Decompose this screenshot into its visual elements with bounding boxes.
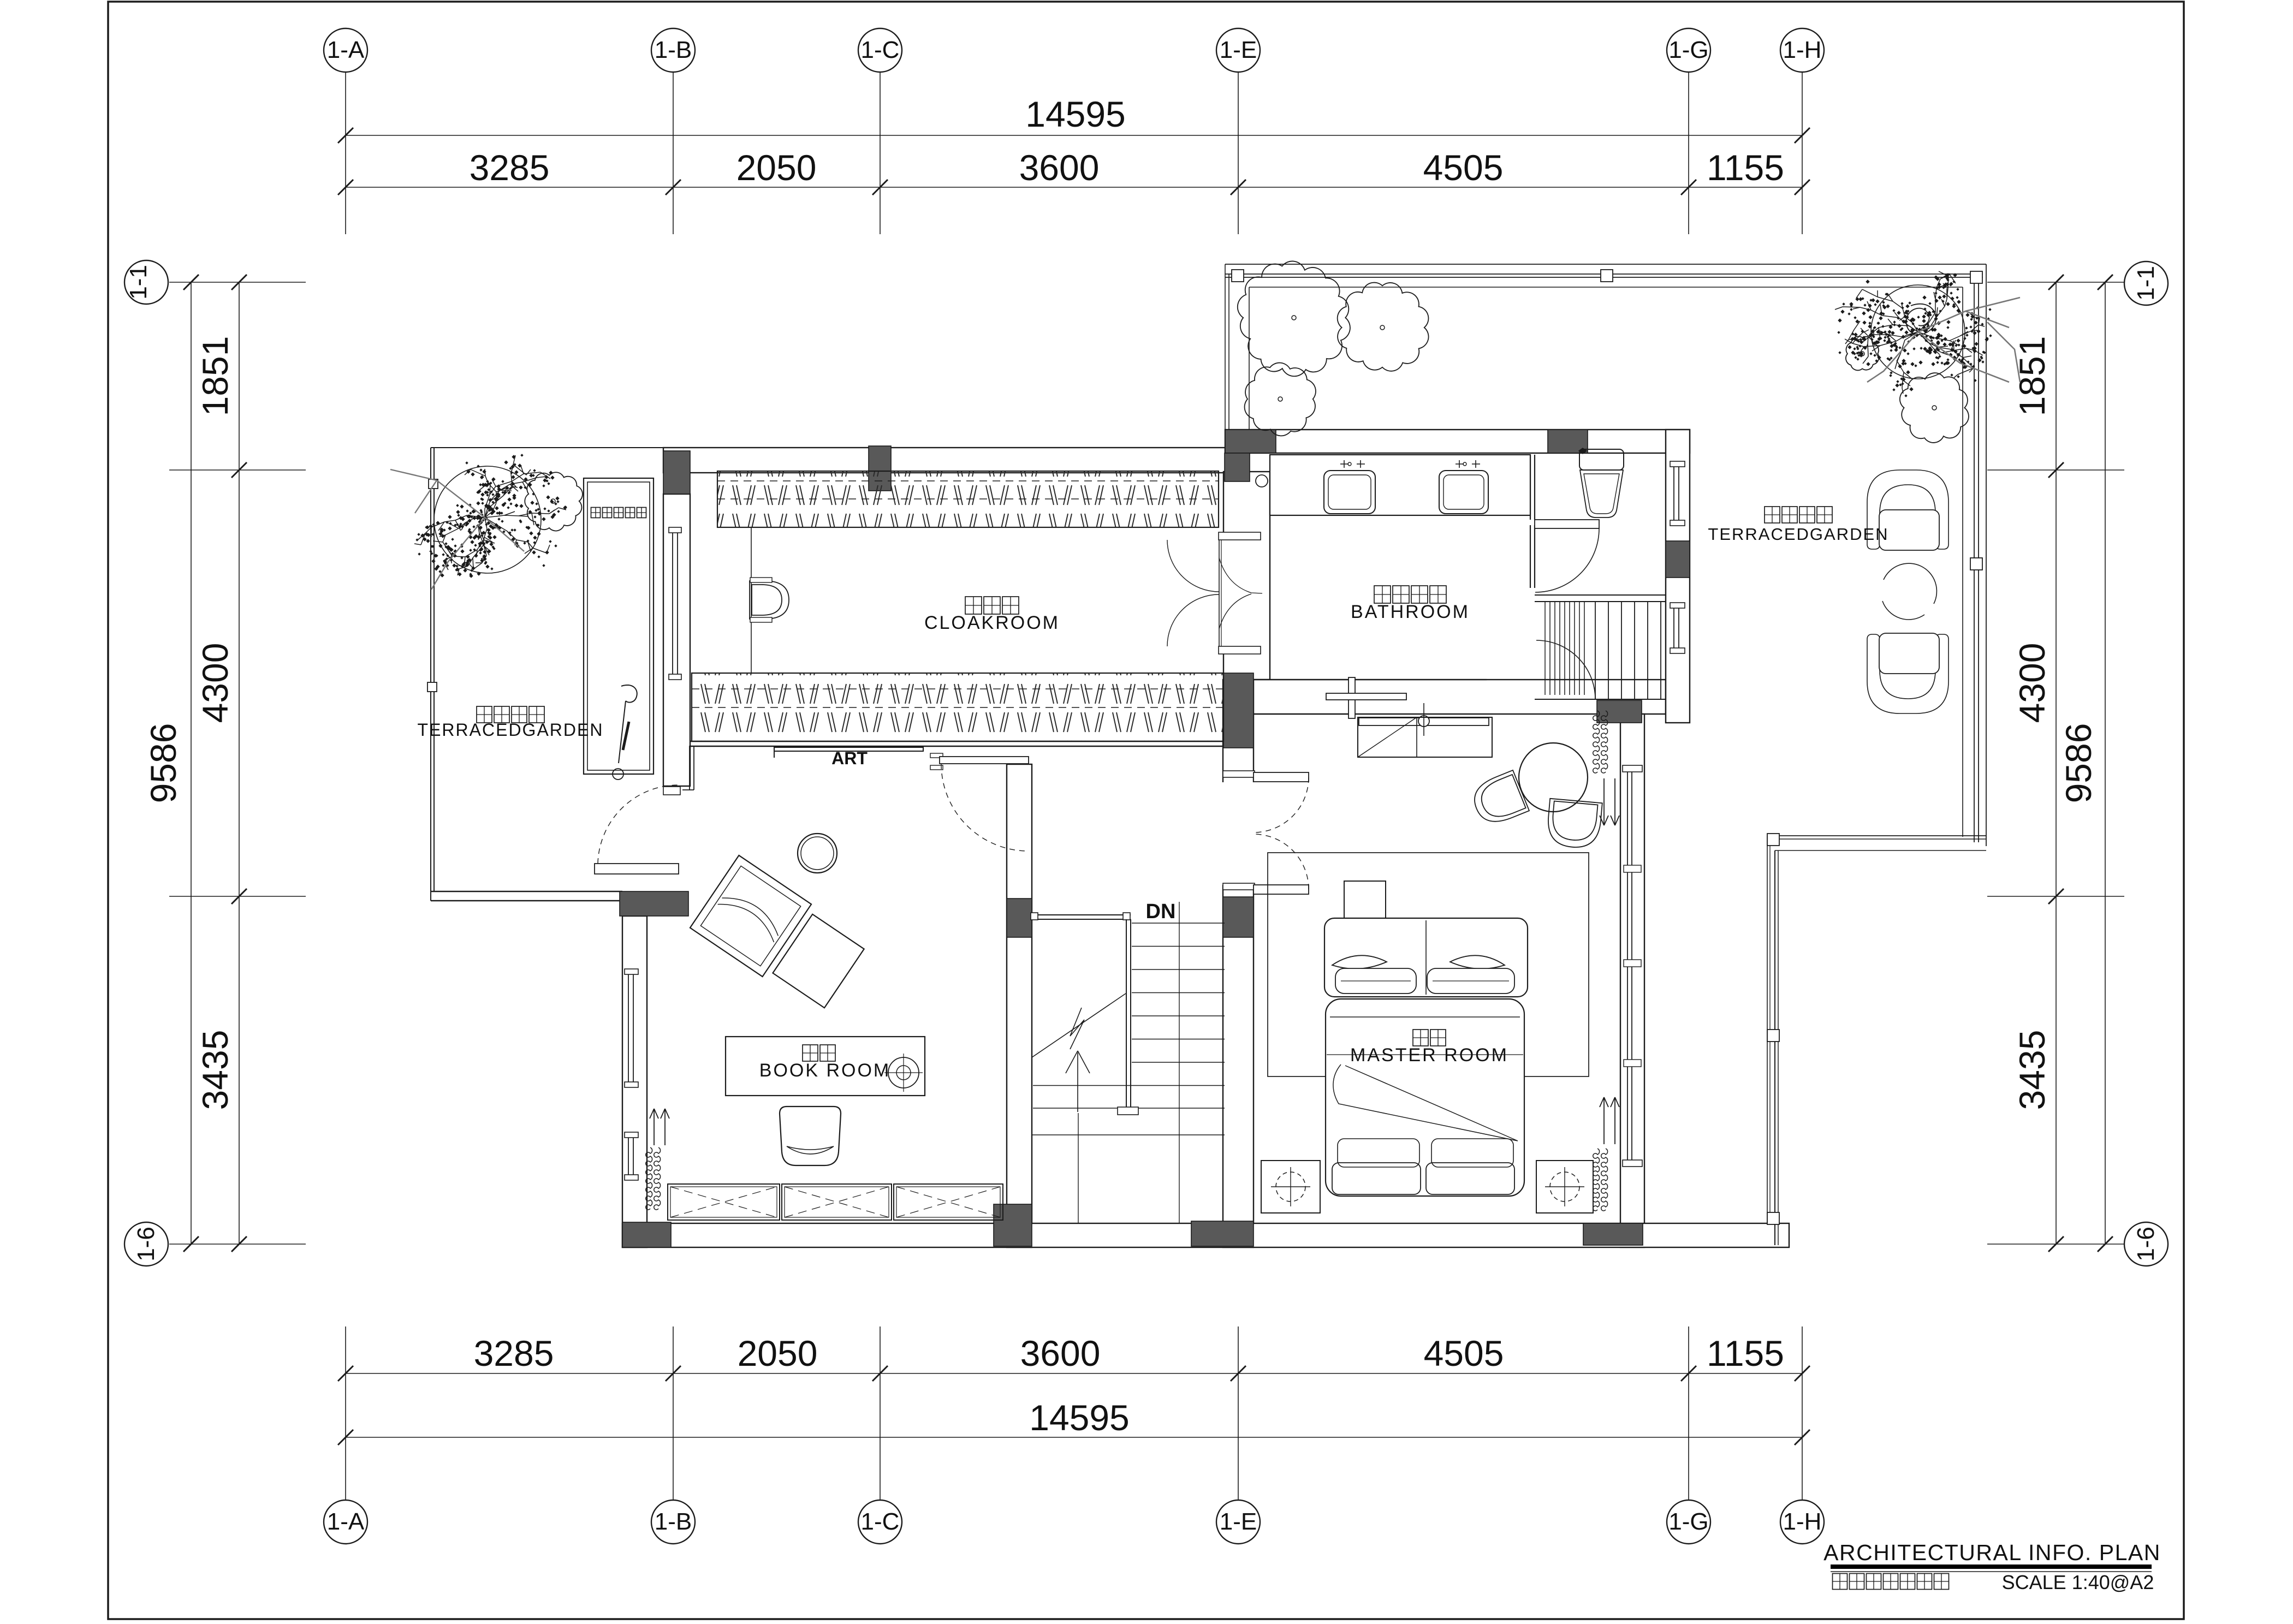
svg-text:TERRACEDGARDEN: TERRACEDGARDEN bbox=[418, 720, 604, 740]
svg-text:1851: 1851 bbox=[195, 336, 235, 417]
svg-text:1-A: 1-A bbox=[327, 1508, 365, 1535]
svg-text:1-C: 1-C bbox=[861, 1508, 900, 1535]
svg-text:1-G: 1-G bbox=[1668, 37, 1708, 63]
svg-text:4300: 4300 bbox=[195, 643, 235, 723]
svg-text:1-E: 1-E bbox=[1220, 1508, 1257, 1535]
svg-text:ARCHITECTURAL INFO. PLAN: ARCHITECTURAL INFO. PLAN bbox=[1823, 1540, 2161, 1565]
svg-text:SCALE 1:40@A2: SCALE 1:40@A2 bbox=[2002, 1571, 2154, 1593]
svg-text:CLOAKROOM: CLOAKROOM bbox=[924, 612, 1060, 633]
svg-text:1-6: 1-6 bbox=[133, 1227, 159, 1262]
svg-text:1-G: 1-G bbox=[1668, 1508, 1708, 1535]
svg-text:4505: 4505 bbox=[1423, 147, 1504, 188]
svg-text:3285: 3285 bbox=[470, 147, 550, 188]
svg-text:1-H: 1-H bbox=[1783, 37, 1822, 63]
svg-text:3435: 3435 bbox=[2012, 1030, 2052, 1110]
svg-text:1-E: 1-E bbox=[1220, 37, 1257, 63]
svg-text:1-A: 1-A bbox=[327, 37, 365, 63]
svg-text:1-H: 1-H bbox=[1783, 1508, 1822, 1535]
svg-text:1-1: 1-1 bbox=[2132, 266, 2159, 301]
svg-text:1-B: 1-B bbox=[655, 37, 692, 63]
svg-text:3285: 3285 bbox=[474, 1333, 554, 1373]
svg-text:1155: 1155 bbox=[1707, 1333, 1784, 1373]
svg-text:9586: 9586 bbox=[2058, 723, 2099, 804]
svg-text:1-6: 1-6 bbox=[2132, 1227, 2159, 1262]
svg-text:4505: 4505 bbox=[1424, 1333, 1504, 1373]
svg-text:ART: ART bbox=[831, 748, 868, 768]
svg-text:1-C: 1-C bbox=[861, 37, 900, 63]
svg-text:2050: 2050 bbox=[736, 147, 817, 188]
svg-text:2050: 2050 bbox=[738, 1333, 818, 1373]
svg-text:1-1: 1-1 bbox=[125, 265, 152, 300]
svg-text:MASTER ROOM: MASTER ROOM bbox=[1350, 1045, 1508, 1066]
svg-text:3600: 3600 bbox=[1020, 1333, 1101, 1373]
svg-text:1-B: 1-B bbox=[655, 1508, 692, 1535]
svg-text:BATHROOM: BATHROOM bbox=[1351, 602, 1470, 622]
svg-text:14595: 14595 bbox=[1029, 1397, 1130, 1438]
svg-text:TERRACEDGARDEN: TERRACEDGARDEN bbox=[1708, 525, 1888, 544]
svg-text:9586: 9586 bbox=[143, 723, 183, 804]
svg-text:DN: DN bbox=[1146, 900, 1176, 923]
svg-text:1155: 1155 bbox=[1707, 147, 1784, 188]
svg-text:1851: 1851 bbox=[2012, 336, 2052, 417]
svg-text:4300: 4300 bbox=[2012, 643, 2052, 723]
svg-text:3600: 3600 bbox=[1019, 147, 1100, 188]
svg-text:14595: 14595 bbox=[1025, 94, 1126, 134]
svg-text:BOOK ROOM: BOOK ROOM bbox=[759, 1060, 890, 1081]
svg-text:3435: 3435 bbox=[195, 1030, 235, 1110]
